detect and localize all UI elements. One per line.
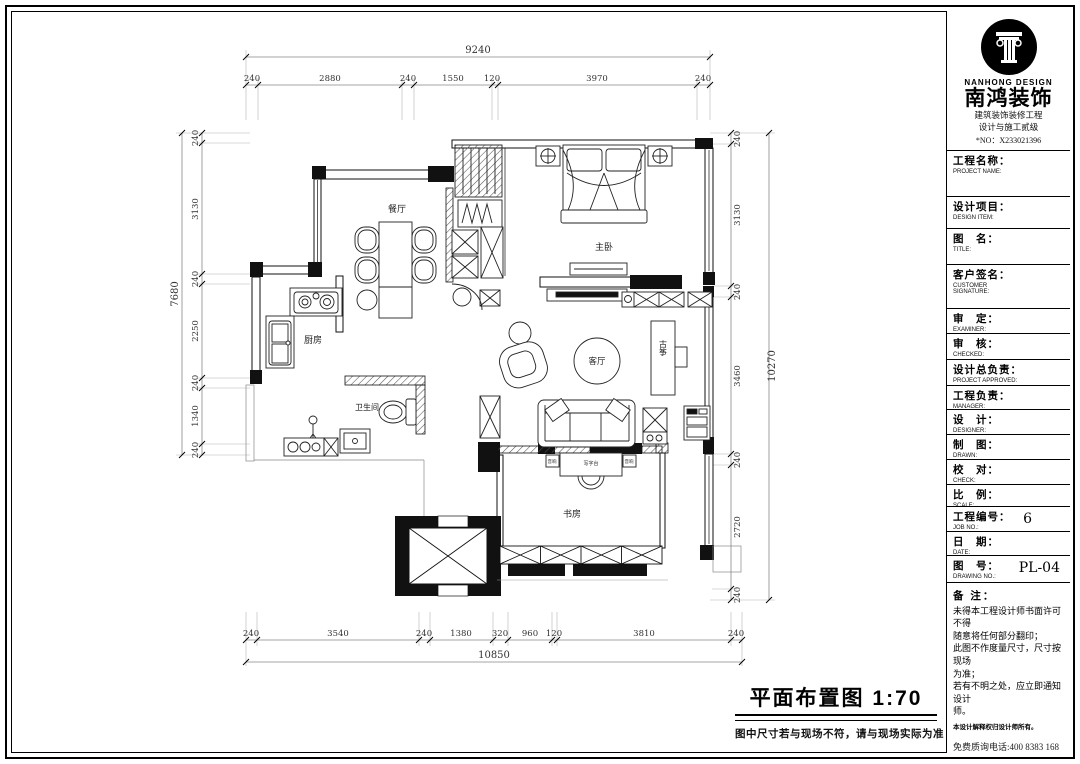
svg-text:3130: 3130: [191, 198, 201, 220]
plan-title: 平面布置图 1:70: [735, 682, 937, 712]
svg-text:3460: 3460: [733, 365, 743, 387]
note-line: 师。: [953, 705, 1065, 718]
field-label-zh: 工程负责：: [953, 388, 1070, 403]
svg-text:9240: 9240: [465, 45, 490, 56]
notes-section: 备 注： 未得本工程设计师书面许可不得 随意将任何部分翻印； 此图不作度量尺寸，…: [947, 583, 1070, 753]
field-label-en: DESIGNER:: [953, 428, 1070, 434]
hotline-phone: 免费质询电话:400 8383 168: [953, 740, 1065, 753]
field-label-zh: 设 计：: [953, 412, 1070, 427]
svg-text:240: 240: [733, 131, 743, 147]
plan-subtitle: 图中尺寸若与现场不符，请与现场实际为准: [735, 726, 937, 741]
svg-text:240: 240: [400, 74, 416, 84]
svg-text:240: 240: [733, 587, 743, 603]
field-drawing-no: 图 号： DRAWING NO.: PL-04: [947, 556, 1070, 583]
field-title: 图 名： TITLE:: [947, 229, 1070, 265]
svg-text:240: 240: [733, 284, 743, 300]
field-value: PL-04: [1019, 560, 1060, 576]
sofa: [538, 399, 635, 447]
svg-text:240: 240: [244, 74, 260, 84]
drawing-sheet: 9240 240 2880 240 1550 120 3970 240 1085…: [0, 0, 1080, 764]
sofa-side-cabinet: [480, 396, 500, 438]
north-cabinets: [622, 292, 712, 307]
study-desk: [546, 453, 636, 489]
field-designer: 设 计： DESIGNER:: [947, 410, 1070, 435]
label-desk-right: 音响: [625, 458, 634, 465]
field-project-name: 工程名称： PROJECT NAME:: [947, 151, 1070, 197]
svg-text:10270: 10270: [767, 350, 778, 382]
note-line: 此图不作度量尺寸，尺寸按现场: [953, 642, 1065, 667]
label-desk-left: 音响: [548, 458, 557, 465]
label-bath: 卫生间: [355, 402, 379, 412]
field-label-zh: 设计项目：: [953, 199, 1070, 214]
kitchen-sink: [266, 316, 294, 368]
note-line: 为准；: [953, 668, 1065, 681]
entry-wardrobe: [452, 145, 503, 306]
svg-text:240: 240: [243, 629, 259, 639]
field-label-en: PROJECT APPROVED:: [953, 378, 1070, 384]
svg-text:3540: 3540: [327, 629, 349, 639]
brand-name-zh: 南鸿装饰: [947, 87, 1070, 110]
guzheng-table: [651, 321, 687, 395]
field-manager: 工程负责： MANAGER:: [947, 386, 1070, 409]
field-label-zh: 审 定：: [953, 311, 1070, 326]
cert-line-1: 建筑装饰装修工程: [947, 110, 1070, 121]
svg-text:1340: 1340: [191, 405, 201, 427]
svg-text:120: 120: [484, 74, 500, 84]
title-block: NANHONG DESIGN 南鸿装饰 建筑装饰装修工程 设计与施工贰级 *NO…: [946, 11, 1070, 753]
svg-text:2880: 2880: [319, 74, 341, 84]
cert-no: *NO：X233021396: [947, 135, 1070, 146]
svg-text:240: 240: [695, 74, 711, 84]
field-label-en: DESIGN ITEM:: [953, 215, 1070, 221]
field-label-zh: 比 例：: [953, 487, 1070, 502]
svg-text:240: 240: [191, 271, 201, 287]
column-logo-icon: [989, 27, 1029, 67]
field-date: 日 期： DATE:: [947, 532, 1070, 556]
svg-text:120: 120: [546, 629, 562, 639]
label-guzheng: 古筝: [659, 339, 668, 356]
svg-text:3970: 3970: [586, 74, 608, 84]
field-label-zh: 设计总负责：: [953, 362, 1070, 377]
kitchen-cooktop: [290, 288, 342, 316]
field-label-en: PROJECT NAME:: [953, 169, 1070, 175]
svg-text:2250: 2250: [191, 320, 201, 342]
field-examiner: 审 定： EXAMINER:: [947, 309, 1070, 334]
bedroom-tv-console: [570, 263, 627, 275]
field-label-en: CUSTOMER SIGNATURE:: [953, 283, 1023, 295]
nightstand-left: [536, 146, 560, 166]
field-label-zh: 校 对：: [953, 462, 1070, 477]
label-desk-center: 写字台: [583, 460, 598, 467]
field-label-zh: 审 核：: [953, 336, 1070, 351]
note-line: 若有不明之处，应立即通知设计: [953, 680, 1065, 705]
dining-stool: [357, 290, 377, 310]
field-label-en: TITLE:: [953, 247, 1070, 253]
field-label-zh: 制 图：: [953, 437, 1070, 452]
field-drawn: 制 图： DRAWN:: [947, 435, 1070, 460]
svg-text:1380: 1380: [450, 629, 472, 639]
label-kitchen: 厨房: [304, 334, 322, 345]
field-label-en: CHECK:: [953, 478, 1070, 484]
armchair: [496, 322, 552, 392]
svg-text:2720: 2720: [733, 516, 743, 538]
field-label-en: EXAMINER:: [953, 327, 1070, 333]
svg-text:240: 240: [191, 375, 201, 391]
living-tv-cabinet: [547, 289, 627, 301]
entry-door: [452, 284, 482, 310]
toilet-icon: [379, 399, 416, 425]
field-customer-signature: 客户签名： CUSTOMER SIGNATURE:: [947, 265, 1070, 310]
svg-text:240: 240: [191, 130, 201, 146]
field-scale: 比 例： SCALE:: [947, 485, 1070, 507]
dining-table: [379, 222, 412, 318]
svg-text:240: 240: [191, 442, 201, 458]
title-underline: [735, 714, 937, 721]
cert-line-2: 设计与施工贰级: [947, 122, 1070, 133]
tea-counter: [643, 406, 710, 444]
svg-text:240: 240: [416, 629, 432, 639]
washbasin: [340, 429, 370, 453]
field-label-zh: 日 期：: [953, 534, 1070, 549]
field-design-item: 设计项目： DESIGN ITEM:: [947, 197, 1070, 229]
field-project-approved: 设计总负责： PROJECT APPROVED:: [947, 360, 1070, 387]
label-master: 主卧: [595, 241, 613, 252]
nightstand-right: [648, 146, 672, 166]
svg-text:960: 960: [522, 629, 538, 639]
svg-text:3130: 3130: [733, 204, 743, 226]
logo-section: NANHONG DESIGN 南鸿装饰 建筑装饰装修工程 设计与施工贰级 *NO…: [947, 11, 1070, 151]
field-label-en: DRAWN:: [953, 453, 1070, 459]
svg-text:7680: 7680: [170, 281, 181, 306]
svg-text:3810: 3810: [633, 629, 655, 639]
field-label-zh: 图 名：: [953, 231, 1070, 246]
note-line: 随意将任何部分翻印；: [953, 630, 1065, 643]
field-checked: 审 核： CHECKED:: [947, 334, 1070, 359]
field-label-zh: 工程名称：: [953, 153, 1070, 168]
shaft-room: [409, 516, 487, 596]
floor-plan-svg: 9240 240 2880 240 1550 120 3970 240 1085…: [0, 0, 1080, 764]
svg-text:240: 240: [728, 629, 744, 639]
field-label-zh: 工程编号：: [953, 509, 1070, 524]
svg-text:1550: 1550: [442, 74, 464, 84]
label-study: 书房: [563, 508, 581, 519]
note-line: 未得本工程设计师书面许可不得: [953, 605, 1065, 630]
copyright-note: 本设计解释权归设计师所有。: [953, 721, 1065, 731]
field-label-en: CHECKED:: [953, 352, 1070, 358]
notes-title: 备 注：: [953, 588, 1065, 603]
field-value: 6: [1023, 511, 1032, 527]
field-label-en: JOB NO.:: [953, 525, 1070, 531]
svg-text:320: 320: [492, 629, 508, 639]
label-living: 客厅: [588, 356, 606, 366]
company-logo: [981, 19, 1037, 75]
laundry-counter: [284, 438, 338, 456]
field-job-no: 工程编号： JOB NO.: 6: [947, 507, 1070, 531]
plan-caption: 平面布置图 1:70 图中尺寸若与现场不符，请与现场实际为准: [735, 682, 937, 741]
furniture: [266, 145, 712, 489]
brand-name-en: NANHONG DESIGN: [947, 78, 1070, 87]
bed: [561, 145, 647, 223]
label-dining: 餐厅: [388, 203, 406, 214]
svg-text:10850: 10850: [478, 650, 510, 661]
field-check: 校 对： CHECK:: [947, 460, 1070, 485]
field-label-zh: 客户签名：: [953, 267, 1070, 282]
svg-text:240: 240: [733, 452, 743, 468]
field-label-en: DATE:: [953, 550, 1070, 556]
